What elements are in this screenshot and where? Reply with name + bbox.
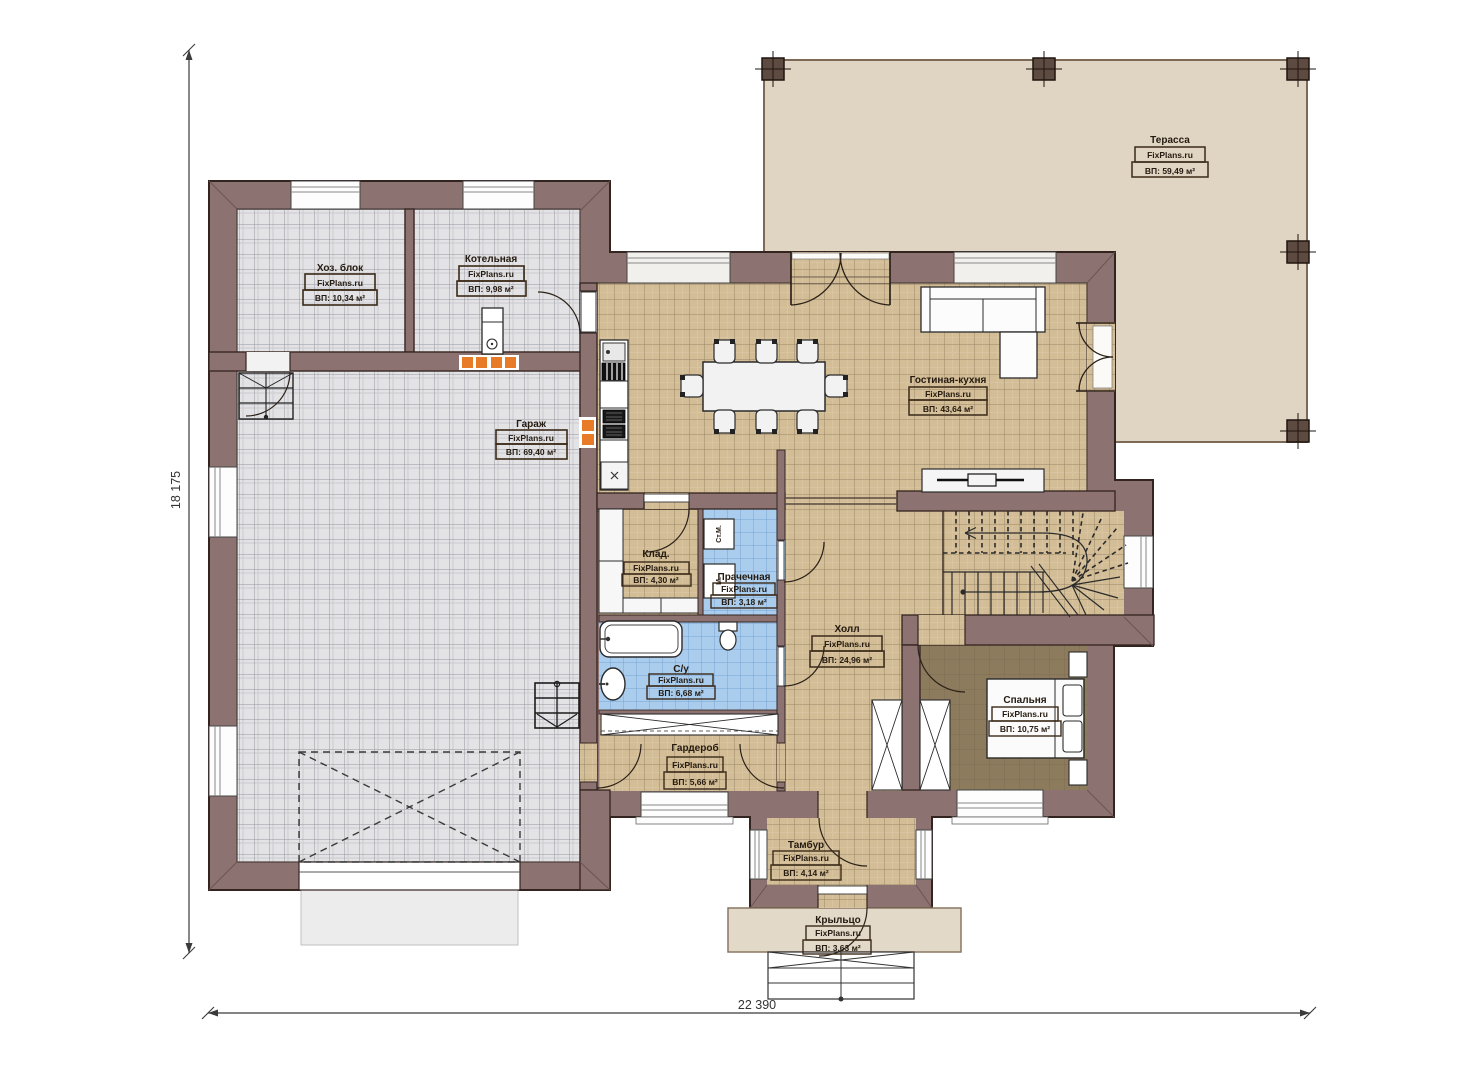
svg-text:FixPlans.ru: FixPlans.ru bbox=[1002, 709, 1048, 719]
svg-text:FixPlans.ru: FixPlans.ru bbox=[925, 389, 971, 399]
svg-text:ВП: 10,75 м²: ВП: 10,75 м² bbox=[1000, 724, 1050, 734]
svg-text:FixPlans.ru: FixPlans.ru bbox=[468, 269, 514, 279]
svg-text:Ст.М.: Ст.М. bbox=[716, 525, 723, 543]
svg-text:ВП: 6,68 м²: ВП: 6,68 м² bbox=[658, 688, 704, 698]
svg-text:FixPlans.ru: FixPlans.ru bbox=[633, 563, 679, 573]
svg-text:FixPlans.ru: FixPlans.ru bbox=[672, 760, 718, 770]
svg-text:18 175: 18 175 bbox=[169, 471, 183, 509]
svg-text:FixPlans.ru: FixPlans.ru bbox=[317, 278, 363, 288]
svg-text:Гостиная-кухня: Гостиная-кухня bbox=[910, 375, 987, 386]
svg-text:FixPlans.ru: FixPlans.ru bbox=[1147, 150, 1193, 160]
svg-text:ВП: 4,14 м²: ВП: 4,14 м² bbox=[783, 868, 829, 878]
svg-text:Спальня: Спальня bbox=[1003, 695, 1046, 706]
svg-text:FixPlans.ru: FixPlans.ru bbox=[508, 433, 554, 443]
svg-text:ВП: 24,96 м²: ВП: 24,96 м² bbox=[822, 655, 872, 665]
svg-text:Холл: Холл bbox=[834, 624, 859, 635]
svg-text:ВП: 43,64 м²: ВП: 43,64 м² bbox=[923, 404, 973, 414]
svg-text:FixPlans.ru: FixPlans.ru bbox=[783, 853, 829, 863]
svg-text:ВП: 3,18 м²: ВП: 3,18 м² bbox=[721, 597, 767, 607]
svg-text:ВП: 10,34 м²: ВП: 10,34 м² bbox=[315, 293, 365, 303]
svg-text:ВП: 3,63 м²: ВП: 3,63 м² bbox=[815, 943, 861, 953]
svg-text:ВП: 59,49 м²: ВП: 59,49 м² bbox=[1145, 166, 1195, 176]
svg-text:Терасса: Терасса bbox=[1150, 135, 1190, 146]
svg-text:Хоз. блок: Хоз. блок bbox=[317, 262, 364, 274]
svg-text:Крыльцо: Крыльцо bbox=[815, 915, 861, 926]
svg-text:Котельная: Котельная bbox=[465, 254, 518, 265]
svg-text:ВП: 5,66 м²: ВП: 5,66 м² bbox=[672, 777, 718, 787]
svg-text:Прачечная: Прачечная bbox=[718, 572, 771, 583]
svg-text:ВП: 9,98 м²: ВП: 9,98 м² bbox=[468, 284, 514, 294]
svg-text:ВП: 69,40 м²: ВП: 69,40 м² bbox=[506, 447, 556, 457]
svg-text:Гардероб: Гардероб bbox=[671, 742, 718, 754]
svg-text:FixPlans.ru: FixPlans.ru bbox=[824, 639, 870, 649]
svg-text:FixPlans.ru: FixPlans.ru bbox=[721, 584, 767, 594]
svg-text:22 390: 22 390 bbox=[738, 998, 776, 1012]
svg-text:FixPlans.ru: FixPlans.ru bbox=[658, 675, 704, 685]
svg-text:Тамбур: Тамбур bbox=[788, 839, 824, 851]
svg-text:FixPlans.ru: FixPlans.ru bbox=[815, 928, 861, 938]
svg-text:Гараж: Гараж bbox=[516, 419, 547, 430]
svg-text:ВП: 4,30 м²: ВП: 4,30 м² bbox=[633, 575, 679, 585]
svg-text:Клад.: Клад. bbox=[642, 549, 669, 560]
